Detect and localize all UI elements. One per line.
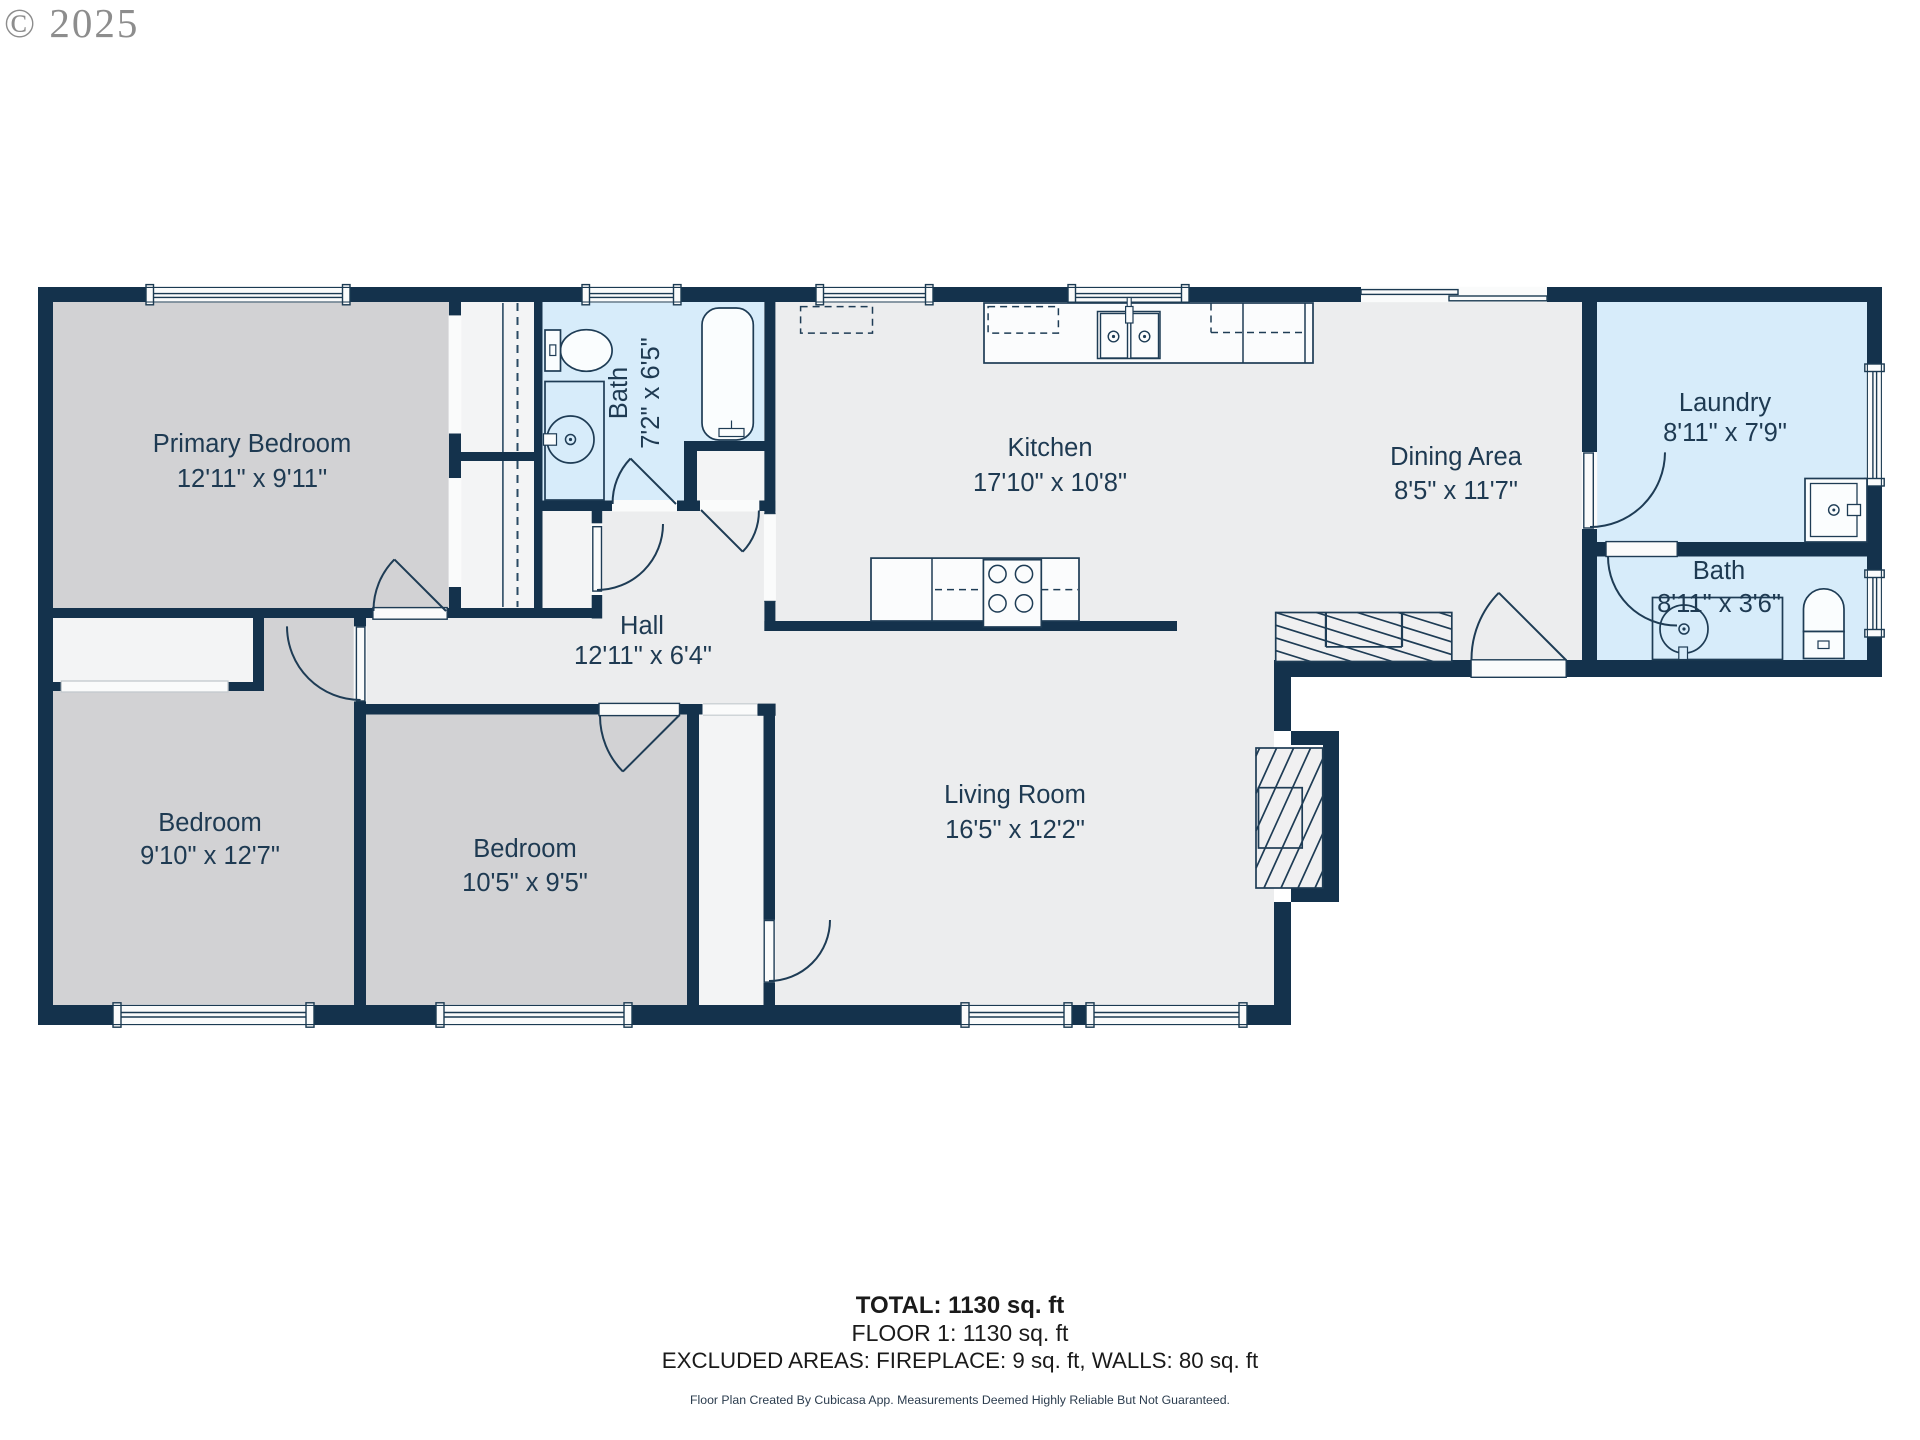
svg-text:8'5" x 11'7": 8'5" x 11'7"	[1394, 477, 1518, 505]
svg-text:© 2025: © 2025	[4, 0, 139, 46]
svg-text:Kitchen: Kitchen	[1007, 434, 1092, 462]
svg-text:EXCLUDED AREAS: FIREPLACE: 9 s: EXCLUDED AREAS: FIREPLACE: 9 sq. ft, WAL…	[662, 1348, 1259, 1373]
svg-text:Bedroom: Bedroom	[158, 809, 261, 837]
svg-text:8'11" x 7'9": 8'11" x 7'9"	[1663, 419, 1787, 447]
svg-text:Primary Bedroom: Primary Bedroom	[153, 430, 351, 458]
svg-text:Floor Plan Created By Cubicasa: Floor Plan Created By Cubicasa App. Meas…	[690, 1393, 1230, 1407]
svg-text:17'10" x 10'8": 17'10" x 10'8"	[973, 469, 1127, 497]
svg-text:Bedroom: Bedroom	[473, 835, 576, 863]
svg-text:Bath: Bath	[1693, 557, 1745, 585]
svg-text:Living Room: Living Room	[944, 781, 1086, 809]
svg-text:12'11" x 6'4": 12'11" x 6'4"	[574, 642, 712, 670]
svg-text:Dining Area: Dining Area	[1390, 443, 1523, 471]
svg-text:8'11" x 3'6": 8'11" x 3'6"	[1657, 590, 1781, 618]
svg-text:16'5" x 12'2": 16'5" x 12'2"	[945, 816, 1085, 844]
svg-text:Bath: Bath	[605, 367, 633, 419]
svg-text:9'10" x 12'7": 9'10" x 12'7"	[140, 842, 280, 870]
svg-text:FLOOR 1: 1130 sq. ft: FLOOR 1: 1130 sq. ft	[852, 1320, 1070, 1346]
svg-text:Hall: Hall	[620, 612, 664, 640]
svg-text:10'5" x 9'5": 10'5" x 9'5"	[462, 869, 588, 897]
svg-text:12'11" x 9'11": 12'11" x 9'11"	[177, 465, 327, 493]
svg-text:Laundry: Laundry	[1679, 389, 1771, 417]
svg-text:7'2" x 6'5": 7'2" x 6'5"	[637, 337, 665, 449]
svg-text:TOTAL: 1130 sq. ft: TOTAL: 1130 sq. ft	[856, 1292, 1065, 1319]
